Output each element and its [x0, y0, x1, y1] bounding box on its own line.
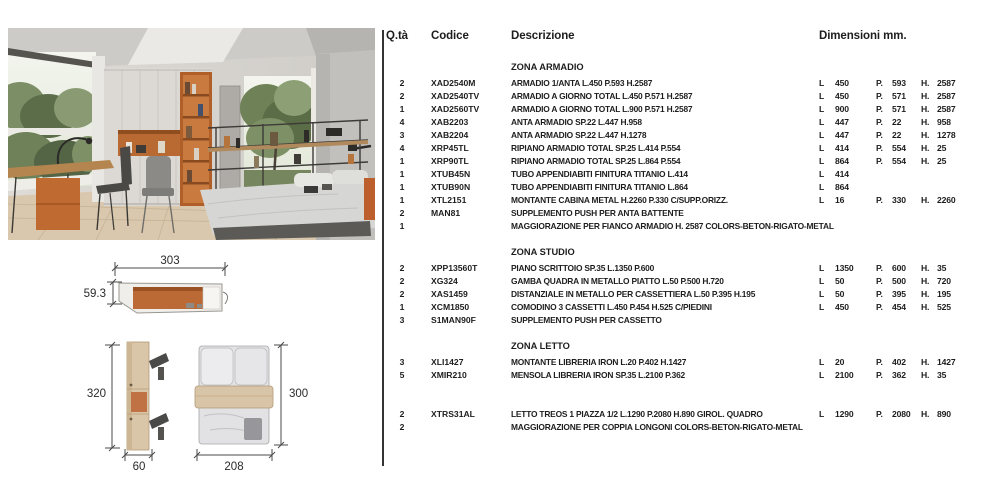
- dimension-label: 303: [160, 255, 179, 267]
- dim-h-value: 35: [937, 263, 946, 273]
- description-cell: LETTO TREOS 1 PIAZZA 1/2 L.1290 P.2080 H…: [511, 409, 763, 419]
- code-cell: XCM1850: [431, 302, 469, 312]
- table-row: 2XAD2540TVARMADIO A GIORNO TOTAL L.450 P…: [386, 90, 998, 103]
- dimension-label: 208: [224, 461, 243, 473]
- description-cell: ARMADIO 1/ANTA L.450 P.593 H.2587: [511, 78, 652, 88]
- dim-h-value: 525: [937, 302, 951, 312]
- qty-cell: 4: [392, 117, 412, 127]
- dimension-label: 320: [87, 388, 106, 400]
- dim-h-label: H.: [921, 276, 929, 286]
- description-cell: ARMADIO A GIORNO TOTAL L.450 P.571 H.258…: [511, 91, 692, 101]
- dim-p-value: 22: [892, 130, 901, 140]
- qty-cell: 1: [392, 182, 412, 192]
- code-cell: XAS1459: [431, 289, 468, 299]
- header-code: Codice: [431, 30, 469, 42]
- table-row: 2XAD2540MARMADIO 1/ANTA L.450 P.593 H.25…: [386, 77, 998, 90]
- qty-cell: 1: [392, 195, 412, 205]
- dim-h-label: H.: [921, 130, 929, 140]
- code-cell: XRP45TL: [431, 143, 469, 153]
- dim-l-label: L: [819, 409, 824, 419]
- code-cell: XTUB90N: [431, 182, 470, 192]
- code-cell: XAD2540M: [431, 78, 475, 88]
- dim-p-label: P.: [876, 117, 883, 127]
- dim-l-label: L: [819, 156, 824, 166]
- description-cell: ANTA ARMADIO SP.22 L.447 H.1278: [511, 130, 646, 140]
- dim-p-value: 593: [892, 78, 906, 88]
- dim-l-value: 20: [835, 357, 844, 367]
- parts-table-body: ZONA ARMADIO2XAD2540MARMADIO 1/ANTA L.45…: [386, 62, 998, 434]
- table-row: 1XRP90TLRIPIANO ARMADIO TOTAL SP.25 L.86…: [386, 155, 998, 168]
- dim-l-value: 414: [835, 143, 849, 153]
- dim-h-value: 25: [937, 143, 946, 153]
- table-row: 5XMIR210MENSOLA LIBRERIA IRON SP.35 L.21…: [386, 369, 998, 382]
- catalog-page: 303 59.3 320 60: [0, 0, 1000, 497]
- description-cell: MAGGIORAZIONE PER FIANCO ARMADIO H. 2587…: [511, 221, 834, 231]
- dim-l-label: L: [819, 182, 824, 192]
- dim-h-value: 25: [937, 156, 946, 166]
- dim-h-label: H.: [921, 357, 929, 367]
- description-cell: MAGGIORAZIONE PER COPPIA LONGONI COLORS-…: [511, 422, 803, 432]
- dim-p-label: P.: [876, 143, 883, 153]
- dim-l-value: 447: [835, 130, 849, 140]
- dim-p-label: P.: [876, 91, 883, 101]
- table-row: 1XTUB45NTUBO APPENDIABITI FINITURA TITAN…: [386, 168, 998, 181]
- dim-l-label: L: [819, 302, 824, 312]
- description-cell: DISTANZIALE IN METALLO PER CASSETTIERA L…: [511, 289, 755, 299]
- qty-cell: 4: [392, 143, 412, 153]
- dim-h-value: 890: [937, 409, 951, 419]
- dim-p-label: P.: [876, 289, 883, 299]
- room-photo-illustration: [8, 28, 375, 240]
- dimension-label: 300: [289, 388, 308, 400]
- table-row: 2XPP13560TPIANO SCRITTOIO SP.35 L.1350 P…: [386, 262, 998, 275]
- code-cell: XTL2151: [431, 195, 466, 205]
- dim-l-value: 1290: [835, 409, 854, 419]
- dim-p-label: P.: [876, 276, 883, 286]
- dim-l-label: L: [819, 357, 824, 367]
- table-row: 1XAD2560TVARMADIO A GIORNO TOTAL L.900 P…: [386, 103, 998, 116]
- description-cell: MONTANTE LIBRERIA IRON L.20 P.402 H.1427: [511, 357, 686, 367]
- dim-h-label: H.: [921, 370, 929, 380]
- dim-p-value: 454: [892, 302, 906, 312]
- table-row: 4XRP45TLRIPIANO ARMADIO TOTAL SP.25 L.41…: [386, 142, 998, 155]
- qty-cell: 1: [392, 221, 412, 231]
- dim-p-label: P.: [876, 370, 883, 380]
- code-cell: S1MAN90F: [431, 315, 476, 325]
- table-header: Q.tà Codice Descrizione Dimensioni mm.: [386, 30, 998, 46]
- dim-h-value: 2587: [937, 78, 956, 88]
- table-section: 2XTRS31ALLETTO TREOS 1 PIAZZA 1/2 L.1290…: [386, 408, 998, 434]
- room-photo: [8, 28, 375, 240]
- table-row: 1XTUB90NTUBO APPENDIABITI FINITURA TITAN…: [386, 181, 998, 194]
- dim-h-value: 720: [937, 276, 951, 286]
- dim-l-label: L: [819, 169, 824, 179]
- qty-cell: 2: [392, 91, 412, 101]
- table-row: 2XG324GAMBA QUADRA IN METALLO PIATTO L.5…: [386, 275, 998, 288]
- description-cell: ANTA ARMADIO SP.22 L.447 H.958: [511, 117, 642, 127]
- dim-p-label: P.: [876, 357, 883, 367]
- dimension-label: 60: [133, 461, 146, 473]
- code-cell: XG324: [431, 276, 458, 286]
- code-cell: XAD2560TV: [431, 104, 479, 114]
- table-row: 1XCM1850COMODINO 3 CASSETTI L.450 P.454 …: [386, 301, 998, 314]
- dim-l-value: 864: [835, 182, 849, 192]
- dim-p-value: 402: [892, 357, 906, 367]
- table-section: ZONA ARMADIO2XAD2540MARMADIO 1/ANTA L.45…: [386, 62, 998, 233]
- dim-l-label: L: [819, 289, 824, 299]
- dim-l-value: 50: [835, 276, 844, 286]
- dim-p-value: 362: [892, 370, 906, 380]
- table-section: ZONA STUDIO2XPP13560TPIANO SCRITTOIO SP.…: [386, 247, 998, 327]
- dim-l-value: 16: [835, 195, 844, 205]
- dim-p-value: 22: [892, 117, 901, 127]
- header-desc: Descrizione: [511, 30, 574, 42]
- dim-p-value: 571: [892, 104, 906, 114]
- dim-p-value: 395: [892, 289, 906, 299]
- dim-p-label: P.: [876, 263, 883, 273]
- dim-l-label: L: [819, 276, 824, 286]
- description-cell: ARMADIO A GIORNO TOTAL L.900 P.571 H.258…: [511, 104, 692, 114]
- qty-cell: 5: [392, 370, 412, 380]
- qty-cell: 1: [392, 156, 412, 166]
- qty-cell: 1: [392, 104, 412, 114]
- dim-p-value: 571: [892, 91, 906, 101]
- dim-l-label: L: [819, 263, 824, 273]
- dim-h-value: 958: [937, 117, 951, 127]
- table-row: 1MAGGIORAZIONE PER FIANCO ARMADIO H. 258…: [386, 220, 998, 233]
- code-cell: XAB2204: [431, 130, 468, 140]
- dim-p-label: P.: [876, 409, 883, 419]
- dim-l-label: L: [819, 130, 824, 140]
- dim-l-label: L: [819, 117, 824, 127]
- dim-p-value: 554: [892, 143, 906, 153]
- table-row: 4XAB2203ANTA ARMADIO SP.22 L.447 H.958L4…: [386, 116, 998, 129]
- dim-p-label: P.: [876, 78, 883, 88]
- description-cell: PIANO SCRITTOIO SP.35 L.1350 P.600: [511, 263, 654, 273]
- dim-h-label: H.: [921, 195, 929, 205]
- section-title: ZONA ARMADIO: [386, 62, 998, 77]
- dim-h-label: H.: [921, 78, 929, 88]
- dim-h-value: 195: [937, 289, 951, 299]
- dim-p-label: P.: [876, 130, 883, 140]
- dim-p-value: 330: [892, 195, 906, 205]
- dim-p-label: P.: [876, 104, 883, 114]
- dim-h-value: 2260: [937, 195, 956, 205]
- top-view-drawing: 303 59.3: [84, 255, 228, 313]
- table-row: 2MAN81SUPPLEMENTO PUSH PER ANTA BATTENTE: [386, 207, 998, 220]
- qty-cell: 3: [392, 357, 412, 367]
- dim-h-label: H.: [921, 263, 929, 273]
- section-title: ZONA LETTO: [386, 341, 998, 356]
- description-cell: SUPPLEMENTO PUSH PER ANTA BATTENTE: [511, 208, 684, 218]
- parts-table: Q.tà Codice Descrizione Dimensioni mm. Z…: [386, 30, 998, 434]
- table-row: 3XLI1427MONTANTE LIBRERIA IRON L.20 P.40…: [386, 356, 998, 369]
- code-cell: XAD2540TV: [431, 91, 479, 101]
- dim-p-value: 554: [892, 156, 906, 166]
- table-row: 2XAS1459DISTANZIALE IN METALLO PER CASSE…: [386, 288, 998, 301]
- code-cell: XAB2203: [431, 117, 468, 127]
- dim-l-value: 450: [835, 302, 849, 312]
- technical-drawings: 303 59.3 320 60: [0, 240, 380, 497]
- qty-cell: 2: [392, 276, 412, 286]
- dimension-label: 59.3: [84, 288, 106, 300]
- table-row: 1XTL2151MONTANTE CABINA METAL H.2260 P.3…: [386, 194, 998, 207]
- dim-h-label: H.: [921, 104, 929, 114]
- window-mullion: [92, 56, 105, 202]
- dim-l-label: L: [819, 78, 824, 88]
- qty-cell: 1: [392, 302, 412, 312]
- qty-cell: 2: [392, 289, 412, 299]
- dim-h-label: H.: [921, 409, 929, 419]
- header-qty: Q.tà: [386, 30, 408, 42]
- dim-p-value: 2080: [892, 409, 911, 419]
- dim-l-label: L: [819, 370, 824, 380]
- side-view-drawing: 320 60: [87, 342, 169, 473]
- dim-h-label: H.: [921, 91, 929, 101]
- description-cell: COMODINO 3 CASSETTI L.450 P.454 H.525 C/…: [511, 302, 712, 312]
- dim-l-value: 864: [835, 156, 849, 166]
- dim-p-label: P.: [876, 195, 883, 205]
- dim-p-label: P.: [876, 156, 883, 166]
- description-cell: SUPPLEMENTO PUSH PER CASSETTO: [511, 315, 662, 325]
- header-dims: Dimensioni mm.: [819, 30, 906, 42]
- description-cell: TUBO APPENDIABITI FINITURA TITANIO L.414: [511, 169, 688, 179]
- dim-h-value: 2587: [937, 91, 956, 101]
- qty-cell: 2: [392, 208, 412, 218]
- nightstand: [364, 178, 375, 220]
- dim-h-value: 1427: [937, 357, 956, 367]
- qty-cell: 1: [392, 169, 412, 179]
- dim-l-label: L: [819, 104, 824, 114]
- dim-l-value: 900: [835, 104, 849, 114]
- dim-h-value: 35: [937, 370, 946, 380]
- dim-l-label: L: [819, 195, 824, 205]
- table-row: 3XAB2204ANTA ARMADIO SP.22 L.447 H.1278L…: [386, 129, 998, 142]
- code-cell: XPP13560T: [431, 263, 477, 273]
- dim-l-label: L: [819, 143, 824, 153]
- qty-cell: 2: [392, 263, 412, 273]
- table-row: 2MAGGIORAZIONE PER COPPIA LONGONI COLORS…: [386, 421, 998, 434]
- dim-h-label: H.: [921, 289, 929, 299]
- dim-h-value: 2587: [937, 104, 956, 114]
- dim-p-label: P.: [876, 302, 883, 312]
- bed-top-view-drawing: 300 208: [194, 342, 308, 473]
- dim-h-label: H.: [921, 156, 929, 166]
- qty-cell: 3: [392, 315, 412, 325]
- table-section: ZONA LETTO3XLI1427MONTANTE LIBRERIA IRON…: [386, 341, 998, 382]
- description-cell: TUBO APPENDIABITI FINITURA TITANIO L.864: [511, 182, 688, 192]
- qty-cell: 2: [392, 422, 412, 432]
- dim-h-label: H.: [921, 117, 929, 127]
- qty-cell: 3: [392, 130, 412, 140]
- dim-l-value: 450: [835, 78, 849, 88]
- code-cell: XTUB45N: [431, 169, 470, 179]
- description-cell: RIPIANO ARMADIO TOTAL SP.25 L.864 P.554: [511, 156, 680, 166]
- bookshelf: [180, 72, 212, 206]
- dim-l-value: 50: [835, 289, 844, 299]
- code-cell: XRP90TL: [431, 156, 469, 166]
- description-cell: MONTANTE CABINA METAL H.2260 P.330 C/SUP…: [511, 195, 728, 205]
- dim-l-value: 1350: [835, 263, 854, 273]
- dim-l-label: L: [819, 91, 824, 101]
- drawings-svg: 303 59.3 320 60: [0, 240, 380, 497]
- divider-line: [382, 30, 384, 466]
- table-row: 3S1MAN90FSUPPLEMENTO PUSH PER CASSETTO: [386, 314, 998, 327]
- dim-h-value: 1278: [937, 130, 956, 140]
- dim-l-value: 414: [835, 169, 849, 179]
- description-cell: GAMBA QUADRA IN METALLO PIATTO L.50 P.50…: [511, 276, 724, 286]
- dim-h-label: H.: [921, 302, 929, 312]
- code-cell: XTRS31AL: [431, 409, 475, 419]
- code-cell: XMIR210: [431, 370, 467, 380]
- dim-l-value: 447: [835, 117, 849, 127]
- dim-h-label: H.: [921, 143, 929, 153]
- dim-l-value: 450: [835, 91, 849, 101]
- dim-l-value: 2100: [835, 370, 854, 380]
- description-cell: MENSOLA LIBRERIA IRON SP.35 L.2100 P.362: [511, 370, 685, 380]
- description-cell: RIPIANO ARMADIO TOTAL SP.25 L.414 P.554: [511, 143, 680, 153]
- code-cell: XLI1427: [431, 357, 464, 367]
- dim-p-value: 500: [892, 276, 906, 286]
- table-row: 2XTRS31ALLETTO TREOS 1 PIAZZA 1/2 L.1290…: [386, 408, 998, 421]
- section-title: ZONA STUDIO: [386, 247, 998, 262]
- code-cell: MAN81: [431, 208, 460, 218]
- qty-cell: 2: [392, 78, 412, 88]
- qty-cell: 2: [392, 409, 412, 419]
- dim-p-value: 600: [892, 263, 906, 273]
